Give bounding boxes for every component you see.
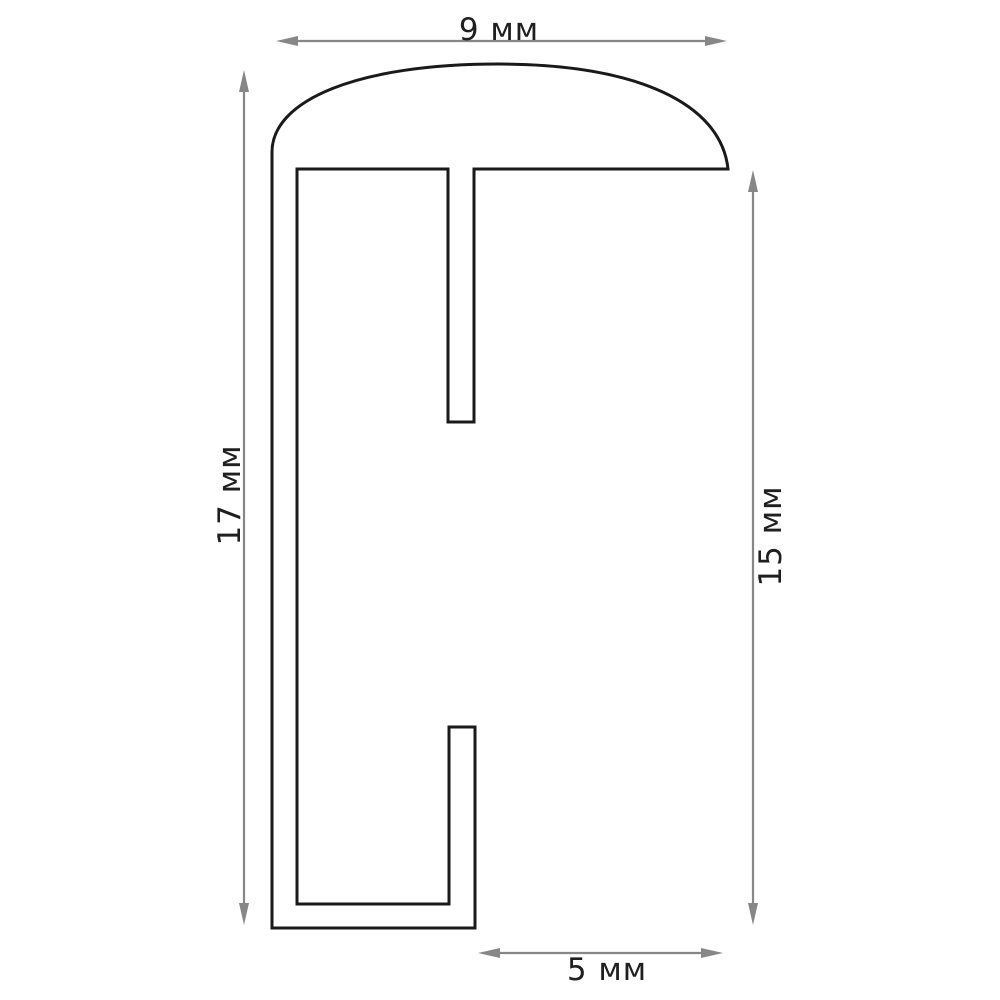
dimension-label-left: 17 мм [212, 444, 248, 545]
dimension-label-right: 15 мм [753, 485, 789, 586]
arrow-down-icon [748, 903, 758, 925]
dimension-label-bottom: 5 мм [567, 952, 647, 988]
dimension-bottom-width: 5 мм [478, 948, 723, 988]
arrow-right-icon [701, 948, 723, 958]
dimension-left-height: 17 мм [212, 70, 249, 925]
arrow-left-icon [276, 36, 298, 46]
profile-cross-section-outline [272, 64, 728, 928]
technical-drawing: 9 мм 17 мм 15 мм 5 мм [0, 0, 1000, 1000]
arrow-up-icon [748, 170, 758, 192]
dimension-top-width: 9 мм [276, 12, 727, 48]
arrow-up-icon [239, 70, 249, 92]
profile-drawing-canvas: 9 мм 17 мм 15 мм 5 мм [0, 0, 1000, 1000]
arrow-left-icon [478, 948, 500, 958]
arrow-down-icon [239, 903, 249, 925]
dimension-right-height: 15 мм [748, 170, 789, 925]
arrow-right-icon [705, 36, 727, 46]
dimension-label-top: 9 мм [459, 12, 539, 48]
